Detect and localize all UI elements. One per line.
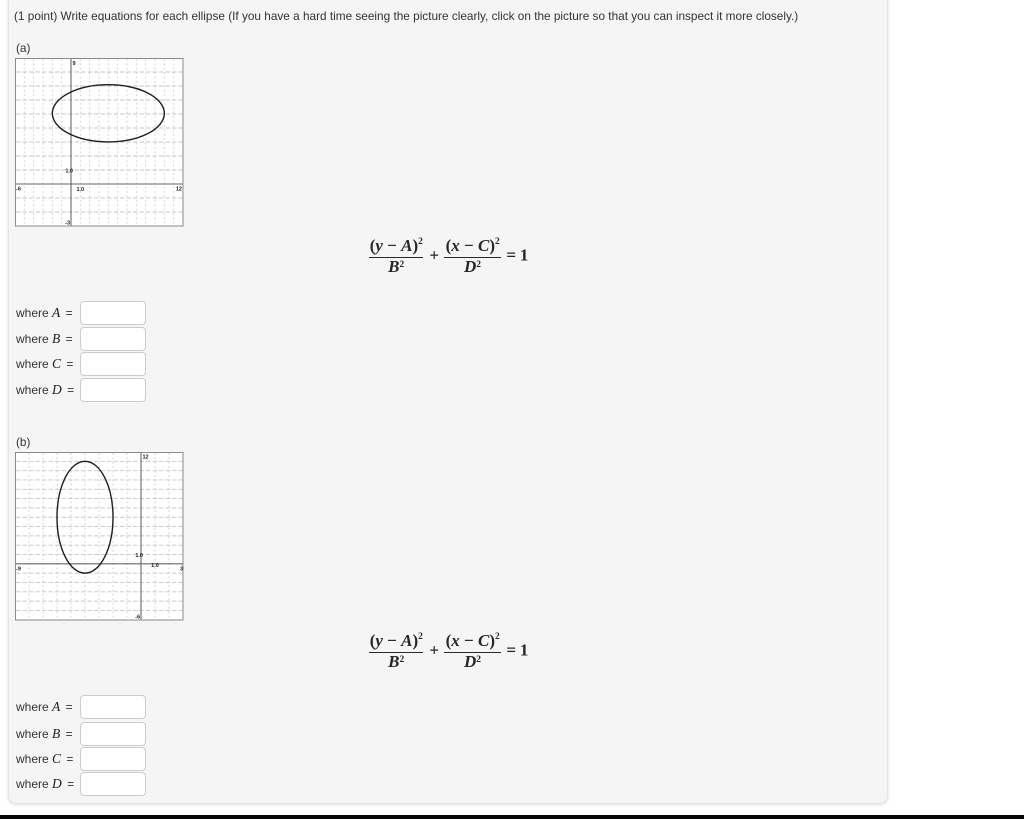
svg-text:9: 9: [73, 61, 76, 67]
svg-text:-9: -9: [16, 566, 21, 572]
svg-text:-3: -3: [65, 221, 70, 227]
svg-text:-6: -6: [16, 187, 21, 193]
svg-text:12: 12: [143, 455, 149, 461]
svg-text:1.0: 1.0: [76, 187, 84, 193]
svg-text:1.0: 1.0: [135, 553, 143, 559]
svg-text:-6: -6: [135, 615, 140, 621]
svg-text:1.0: 1.0: [65, 169, 73, 175]
svg-text:3: 3: [180, 566, 183, 572]
svg-text:12: 12: [176, 187, 182, 193]
svg-text:1.0: 1.0: [151, 563, 159, 569]
